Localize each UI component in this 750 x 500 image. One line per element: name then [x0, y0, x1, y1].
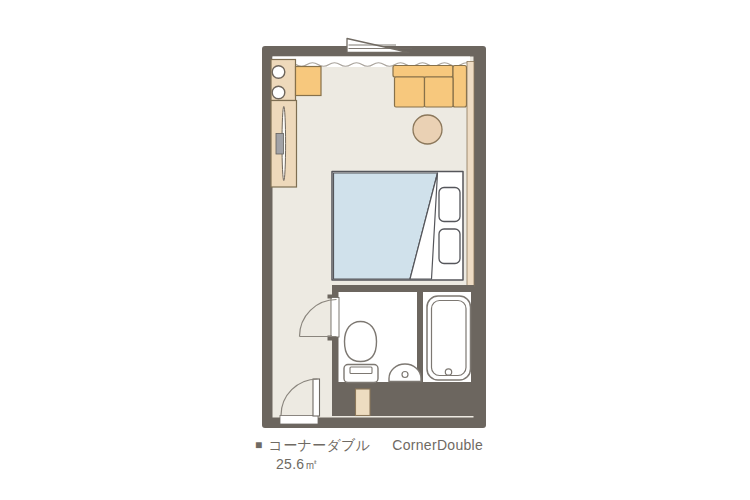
- sofa-back: [393, 66, 453, 78]
- sofa-cushion: [395, 77, 425, 107]
- sofa-cushion: [425, 77, 454, 107]
- room-name-en: CornerDouble: [392, 437, 483, 453]
- caption-line-1: ■コーナーダブルCornerDouble: [255, 437, 483, 455]
- burner-icon: [272, 86, 285, 99]
- caption: ■コーナーダブルCornerDouble 25.6㎡: [255, 437, 483, 473]
- bathroom-door-leaf: [331, 298, 339, 338]
- room-name-ja: コーナーダブル: [269, 437, 371, 453]
- pillow: [439, 188, 460, 222]
- round-table: [413, 115, 442, 144]
- toilet: [344, 322, 378, 383]
- bed: [332, 172, 463, 281]
- floor-plan: [0, 0, 750, 500]
- entry-cabinet: [356, 389, 371, 416]
- sink-drain-icon: [402, 372, 408, 378]
- tv: [276, 134, 284, 155]
- entrance-door-leaf: [313, 379, 320, 416]
- sofa: [393, 66, 467, 108]
- tub-drain-icon: [445, 369, 451, 375]
- burner-icon: [272, 66, 285, 79]
- entrance-opening: [280, 416, 318, 425]
- kitchenette-counter: [271, 60, 296, 101]
- pillow: [439, 229, 460, 264]
- floor-plan-page: ■コーナーダブルCornerDouble 25.6㎡: [0, 0, 750, 500]
- room-area: 25.6㎡: [276, 456, 319, 472]
- open-window-symbol: [347, 39, 412, 53]
- sofa-armrest: [453, 66, 467, 108]
- tv-desk: [271, 101, 297, 188]
- headboard-ledge: [467, 62, 474, 287]
- caption-bullet: ■: [255, 438, 263, 452]
- fridge-cabinet: [296, 67, 322, 96]
- caption-line-2: 25.6㎡: [276, 456, 483, 473]
- bathtub: [427, 296, 471, 380]
